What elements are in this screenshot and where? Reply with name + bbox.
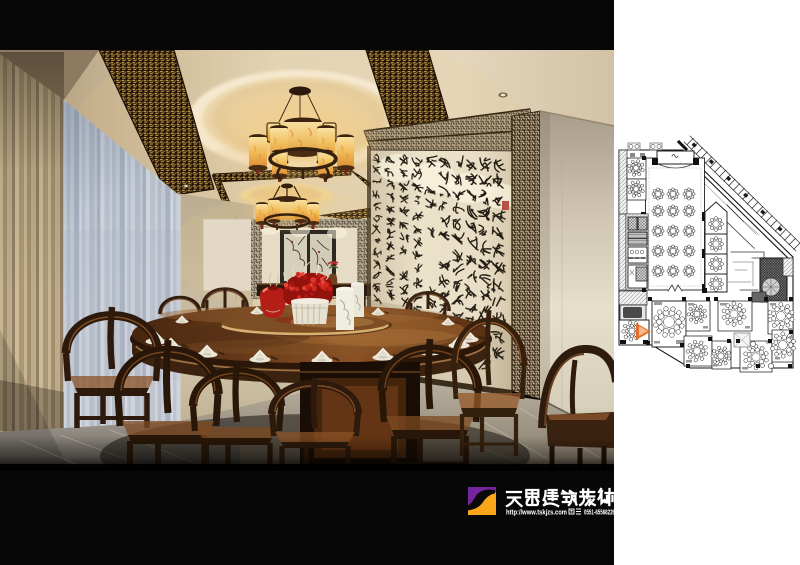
svg-text:http://www.tskjzs.com: http://www.tskjzs.com <box>506 508 567 517</box>
svg-text:0551-65568226: 0551-65568226 <box>584 508 615 517</box>
